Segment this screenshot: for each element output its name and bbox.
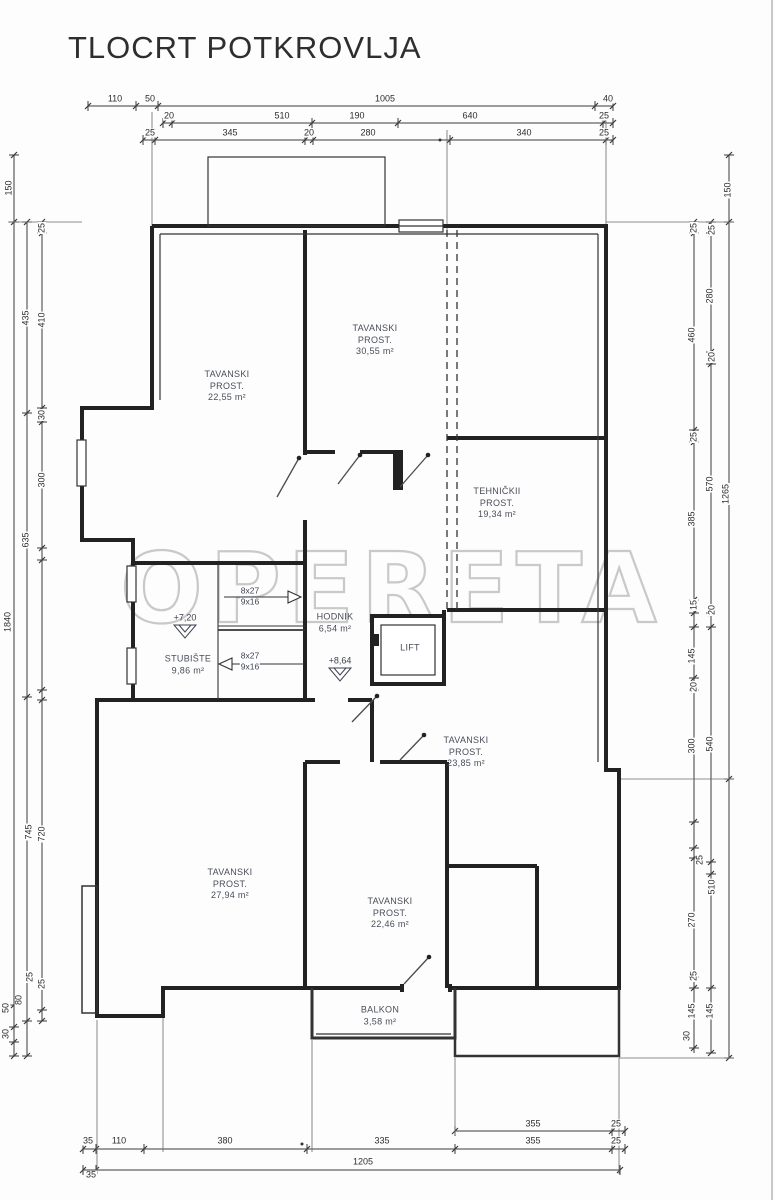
door-hinge-dot xyxy=(422,733,427,738)
left-roof-edge xyxy=(82,886,97,1013)
dormer-outline xyxy=(208,157,385,226)
window-left-3 xyxy=(77,440,86,486)
balcony-outline xyxy=(312,988,455,1038)
stair-arrow-down xyxy=(219,658,232,670)
door-hinge-dot xyxy=(427,955,432,960)
terrace-outline xyxy=(455,988,619,1056)
window-left-2 xyxy=(127,648,136,684)
door-hinge-dot xyxy=(375,694,380,699)
floor-plan-page: TLOCRT POTKROVLJA OPERETA xyxy=(0,0,775,1200)
window-left-1 xyxy=(127,566,136,602)
door-hinge-dot xyxy=(426,453,431,458)
page-edge-line xyxy=(771,0,773,1200)
door-hinge-dot xyxy=(358,453,363,458)
floor-plan-drawing: OPERETA xyxy=(0,0,775,1200)
door-hinge-dot xyxy=(297,456,302,461)
